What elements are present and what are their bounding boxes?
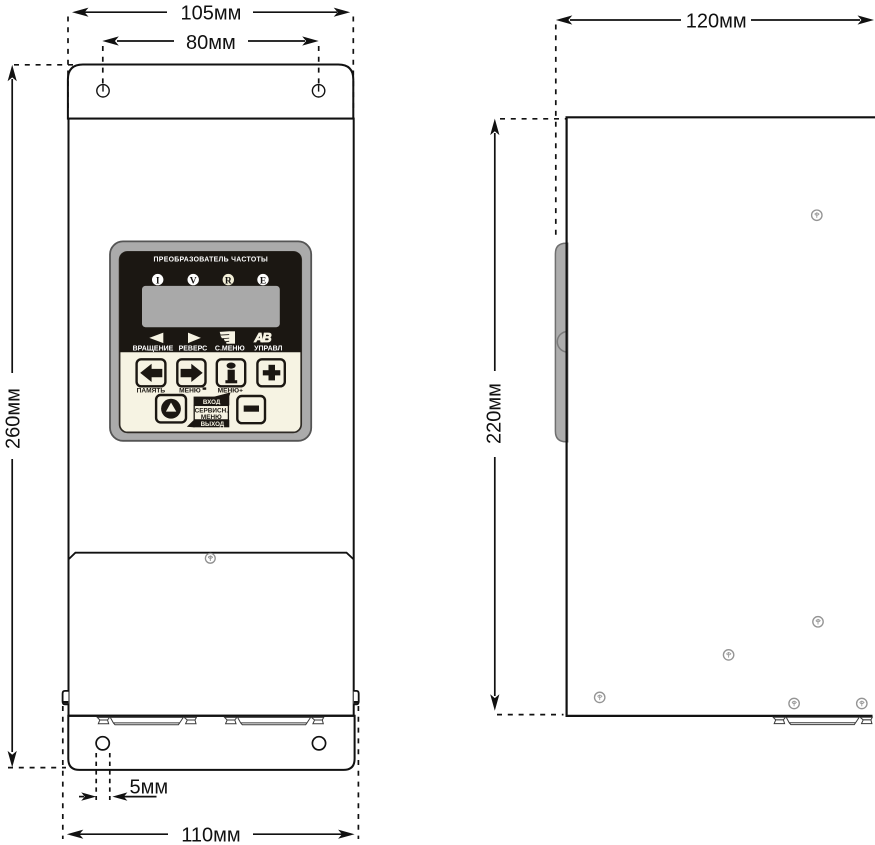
svg-text:120мм: 120мм bbox=[686, 10, 747, 32]
svg-text:105мм: 105мм bbox=[180, 2, 241, 24]
svg-text:110мм: 110мм bbox=[181, 824, 240, 845]
svg-text:80мм: 80мм bbox=[186, 32, 236, 54]
svg-text:I: I bbox=[156, 276, 160, 286]
svg-text:МЕНЮ: МЕНЮ bbox=[179, 387, 201, 394]
svg-text:УПРАВЛ: УПРАВЛ bbox=[254, 345, 282, 352]
svg-text:МЕНЮ+: МЕНЮ+ bbox=[218, 387, 243, 394]
svg-text:С.МЕНЮ: С.МЕНЮ bbox=[215, 345, 245, 352]
svg-text:ВЫХОД: ВЫХОД bbox=[201, 421, 225, 428]
svg-text:АВ: АВ bbox=[253, 330, 271, 345]
svg-text:220мм: 220мм bbox=[483, 383, 505, 444]
svg-text:E: E bbox=[260, 276, 266, 286]
svg-text:5мм: 5мм bbox=[129, 777, 168, 799]
svg-text:260мм: 260мм bbox=[3, 388, 25, 449]
svg-text:R: R bbox=[225, 276, 232, 286]
svg-text:ПАМЯТЬ: ПАМЯТЬ bbox=[137, 387, 166, 394]
svg-text:МЕНЮ: МЕНЮ bbox=[201, 414, 222, 421]
svg-text:РЕВЕРС: РЕВЕРС bbox=[179, 345, 208, 352]
svg-text:V: V bbox=[190, 276, 197, 286]
svg-text:ВРАЩЕНИЕ: ВРАЩЕНИЕ bbox=[133, 345, 174, 352]
svg-text:ПРЕОБРАЗОВАТЕЛЬ ЧАСТОТЫ: ПРЕОБРАЗОВАТЕЛЬ ЧАСТОТЫ bbox=[154, 257, 268, 264]
